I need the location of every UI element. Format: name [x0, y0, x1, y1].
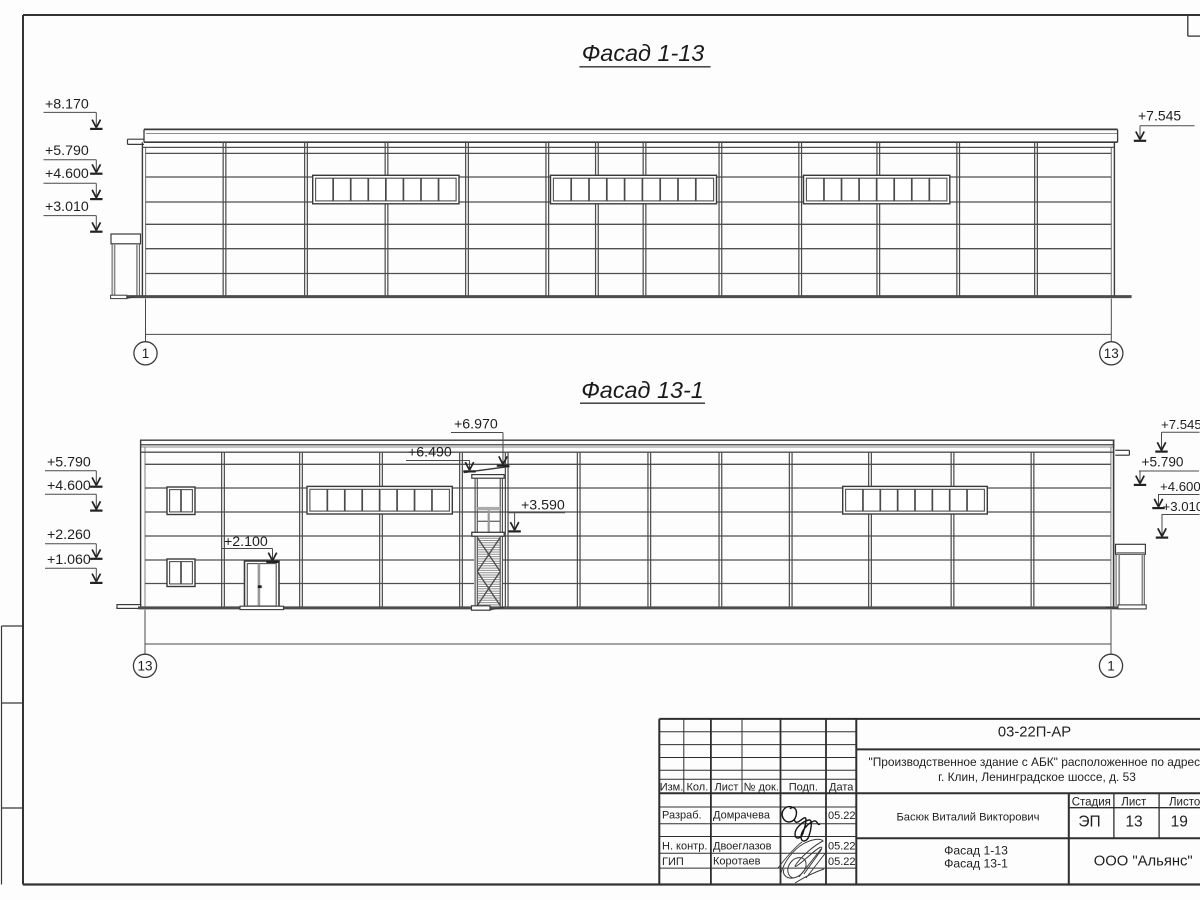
svg-text:1: 1 [1107, 659, 1115, 674]
svg-text:Басюк Виталий Викторович: Басюк Виталий Викторович [896, 812, 1039, 824]
svg-text:+4.600: +4.600 [45, 166, 89, 182]
svg-text:Фасад 1-13: Фасад 1-13 [944, 844, 1008, 858]
svg-text:"Производственное здание с АБК: "Производственное здание с АБК" располож… [869, 755, 1200, 769]
svg-text:Подп.: Подп. [789, 782, 818, 794]
svg-text:13: 13 [1125, 813, 1142, 830]
svg-text:+4.600: +4.600 [47, 478, 91, 494]
svg-text:Лист: Лист [1121, 796, 1147, 808]
svg-text:+3.590: +3.590 [521, 497, 565, 513]
svg-text:+5.790: +5.790 [1142, 455, 1184, 470]
svg-text:+7.545: +7.545 [1161, 417, 1200, 432]
svg-text:Фасад 1-13: Фасад 1-13 [582, 40, 705, 66]
svg-text:+5.790: +5.790 [47, 454, 91, 470]
svg-text:13: 13 [1104, 346, 1119, 361]
svg-text:Лист: Лист [715, 782, 739, 794]
svg-text:Разраб.: Разраб. [662, 810, 702, 822]
svg-text:Фасад 13-1: Фасад 13-1 [944, 857, 1008, 871]
svg-text:+8.170: +8.170 [45, 97, 89, 113]
svg-text:+2.260: +2.260 [47, 527, 91, 543]
svg-text:05.22: 05.22 [828, 856, 856, 868]
svg-text:+5.790: +5.790 [45, 143, 89, 159]
svg-text:ГИП: ГИП [662, 856, 684, 868]
svg-text:+1.060: +1.060 [47, 552, 91, 568]
svg-text:№ док.: № док. [744, 782, 779, 794]
svg-text:13: 13 [137, 659, 152, 674]
svg-text:05.22: 05.22 [828, 841, 856, 853]
svg-text:05.22: 05.22 [828, 810, 856, 822]
svg-text:+2.100: +2.100 [224, 534, 268, 550]
svg-text:Стадия: Стадия [1072, 796, 1111, 808]
svg-text:1: 1 [142, 346, 150, 361]
svg-text:+3.010: +3.010 [1163, 499, 1200, 514]
svg-text:+6.970: +6.970 [454, 417, 498, 433]
svg-text:Н. контр.: Н. контр. [662, 840, 707, 852]
svg-text:ООО "Альянс": ООО "Альянс" [1094, 854, 1193, 870]
svg-text:Домрачева: Домрачева [713, 810, 771, 822]
svg-text:Дата: Дата [829, 782, 854, 794]
svg-text:Двоеглазов: Двоеглазов [713, 840, 772, 852]
svg-text:+4.600: +4.600 [1160, 479, 1200, 494]
svg-text:Листов: Листов [1169, 796, 1200, 808]
svg-text:+7.545: +7.545 [1138, 108, 1181, 124]
svg-text:Изм.: Изм. [660, 782, 684, 794]
svg-text:+6.490: +6.490 [408, 445, 452, 461]
svg-text:03-22П-АР: 03-22П-АР [998, 725, 1071, 741]
svg-text:19: 19 [1171, 813, 1188, 830]
svg-text:Кол.: Кол. [687, 782, 709, 794]
svg-text:г. Клин, Ленинградское шоссе,: г. Клин, Ленинградское шоссе, д. 53 [938, 770, 1136, 784]
svg-text:Фасад 13-1: Фасад 13-1 [581, 377, 704, 403]
svg-text:+3.010: +3.010 [45, 199, 89, 215]
svg-text:ЭП: ЭП [1078, 813, 1100, 830]
svg-text:Коротаев: Коротаев [713, 856, 761, 868]
